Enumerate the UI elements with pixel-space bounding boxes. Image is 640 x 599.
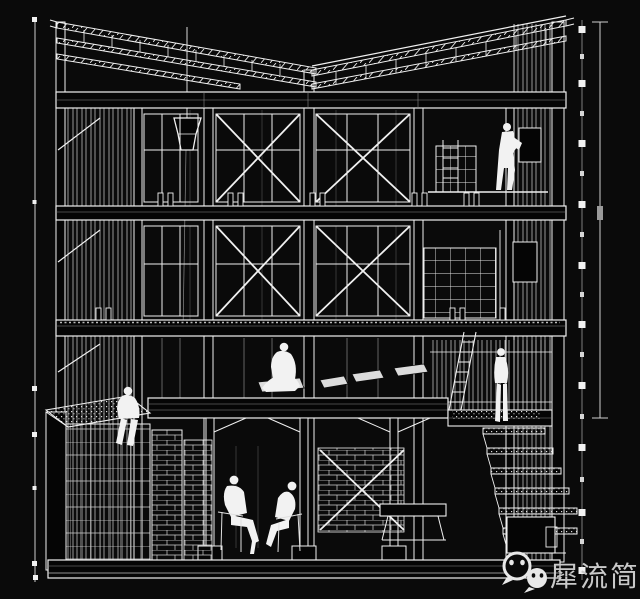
section-drawing: 犀流简报 — [0, 0, 640, 599]
basement-slab — [48, 560, 560, 578]
watermark-text: 犀流简报 — [550, 560, 640, 593]
block-wall — [152, 430, 182, 562]
block-wall — [184, 440, 212, 560]
screenshot-root: 犀流简报 — [0, 0, 640, 599]
roof-beam — [56, 92, 566, 108]
basement-braced-bay — [318, 448, 404, 532]
